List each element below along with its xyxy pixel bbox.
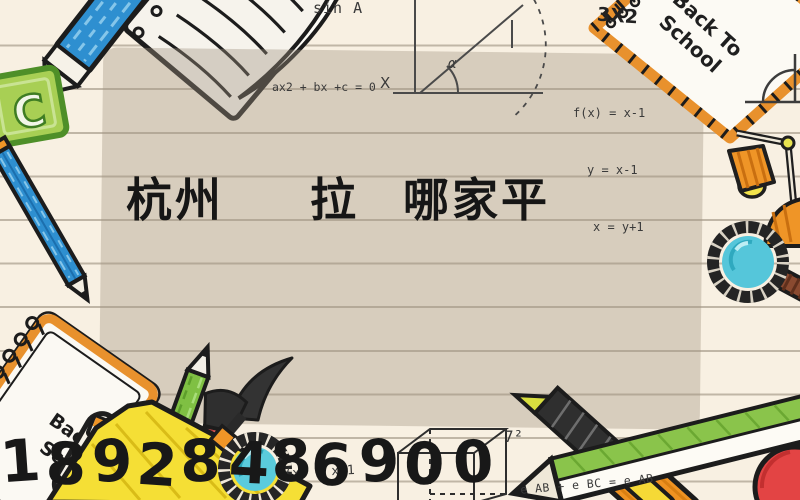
page-title: 杭州拉哪家平 bbox=[126, 164, 550, 230]
angle-diagram bbox=[393, 0, 546, 118]
formula-3x2: 3X2 bbox=[596, 4, 639, 29]
formula-sin: sin A bbox=[313, 0, 363, 17]
phone-digit: 8 bbox=[269, 431, 313, 492]
formula-y: y = x-1 bbox=[573, 161, 645, 180]
phone-digit: 2 bbox=[135, 435, 179, 496]
phone-number: 1 8 9 2 8 4 8 6 9 0 0 bbox=[0, 432, 520, 500]
letter-card-icon: C bbox=[0, 67, 68, 146]
formula-x: x = y+1 bbox=[573, 218, 645, 237]
phone-digit: 0 bbox=[452, 432, 495, 492]
title-segment-1: 杭州 bbox=[126, 173, 224, 227]
formula-block-right: f(x) = x-1 y = x-1 x = y+1 bbox=[573, 66, 645, 275]
formula-quadratic: ax2 + bx +c = 0 bbox=[272, 80, 376, 94]
phone-digit: 9 bbox=[91, 431, 134, 491]
phone-digit: 8 bbox=[45, 434, 88, 494]
back-to-school-poster: C bbox=[0, 0, 800, 500]
phone-digit: 8 bbox=[179, 431, 221, 490]
formula-fx: f(x) = x-1 bbox=[573, 104, 645, 123]
axis-x-label: X bbox=[380, 74, 390, 92]
phone-digit: 6 bbox=[310, 435, 353, 495]
alpha-label: α bbox=[448, 56, 456, 72]
blue-pencil-icon bbox=[0, 137, 96, 304]
title-segment-2: 拉 bbox=[310, 173, 359, 227]
title-segment-3: 哪家平 bbox=[403, 173, 550, 227]
phone-digit: 1 bbox=[0, 431, 42, 492]
phone-digit: 0 bbox=[403, 434, 445, 493]
phone-digit: 4 bbox=[228, 433, 271, 493]
over-panel-doodles: C bbox=[0, 0, 800, 500]
apple-icon bbox=[755, 447, 800, 500]
phone-digit: 9 bbox=[358, 431, 401, 491]
